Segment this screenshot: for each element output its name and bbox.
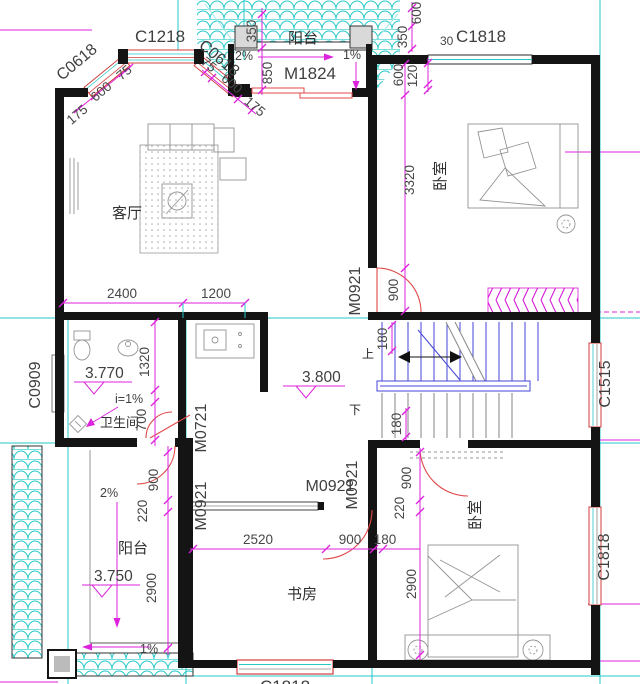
label-door-m0721: M0721 [193, 403, 210, 452]
dim-bed2-900: 900 [399, 467, 414, 490]
dim-living-2400: 2400 [107, 286, 137, 301]
dim-living-1200: 1200 [201, 286, 231, 301]
dim-balc-220: 220 [135, 500, 150, 523]
dim-study-900: 900 [339, 532, 362, 547]
room-study: 书房 [287, 586, 317, 603]
dim-bed1-3320: 3320 [402, 165, 417, 195]
dim-bed1-900: 900 [386, 279, 401, 302]
slope-bath: i=1% [115, 392, 143, 406]
dim-tr-600-inner: 600 [391, 64, 406, 87]
floor-plan-svg: C0618 C1218 C0618 C1818 阳台 M1824 2% 1% 3… [0, 0, 640, 684]
dim-balc-2900: 2900 [144, 573, 159, 603]
level-bath: 3.770 [85, 365, 124, 382]
room-living: 客厅 [112, 205, 142, 222]
dim-study-180: 180 [374, 532, 397, 547]
label-door-m0921-bedroom-top: M0921 [347, 266, 364, 315]
dim-tr-600-top: 600 [409, 2, 424, 25]
room-balcony-top: 阳台 [288, 30, 318, 47]
stair-down-label: 下 [349, 403, 361, 417]
window-study-interior [192, 502, 318, 510]
dim-tr-30: 30 [440, 34, 454, 48]
dim-bed2-220: 220 [392, 497, 407, 520]
wardrobe-zigzag [488, 288, 578, 316]
corner-column-core [54, 656, 70, 672]
slope-balcony-top-right: 1% [343, 48, 361, 62]
room-bedroom-bottom: 卧室 [467, 500, 484, 530]
dim-bath-700: 700 [134, 409, 149, 432]
floor-plan: C0618 C1218 C0618 C1818 阳台 M1824 2% 1% 3… [0, 0, 640, 684]
label-window-c1515: C1515 [597, 360, 614, 407]
stair-up-label: 上 [362, 347, 374, 361]
dim-stair-180-top: 180 [375, 328, 390, 351]
room-bedroom-top: 卧室 [432, 161, 449, 191]
dim-tr-350: 350 [395, 26, 410, 49]
label-window-c1218: C1218 [135, 27, 185, 46]
room-balcony-bottom: 阳台 [118, 540, 148, 557]
window-c1218 [126, 50, 196, 63]
label-window-c0909: C0909 [27, 361, 44, 408]
dim-balcony-350: 350 [244, 20, 259, 43]
level-hall: 3.800 [302, 369, 341, 386]
window-study-bottom [237, 660, 333, 674]
slope-balcony-left: 1% [140, 642, 158, 656]
level-balcony: 3.750 [94, 568, 133, 585]
dim-tr-120: 120 [405, 65, 420, 88]
slope-balcony-down: 2% [100, 486, 118, 500]
slope-balcony-top-left: 2% [235, 49, 253, 63]
dim-study-2520: 2520 [243, 532, 273, 547]
window-c1818-top [428, 55, 532, 64]
dim-stair-180-bottom: 180 [389, 413, 404, 436]
label-door-m1824: M1824 [284, 64, 336, 83]
dim-bath-1320: 1320 [137, 347, 152, 377]
label-door-m0921-balcony: M0921 [193, 481, 210, 530]
dim-balcony-850: 850 [260, 62, 275, 85]
label-window-c1818-right: C1818 [596, 533, 613, 580]
dim-bed2-2900: 2900 [404, 569, 419, 599]
label-window-c1818-top: C1818 [456, 27, 506, 46]
label-door-m0921-bedroom-bottom: M0921 [344, 460, 361, 509]
label-window-bottom-partial: C1818 [260, 677, 310, 684]
dim-balc-900: 900 [146, 469, 161, 492]
